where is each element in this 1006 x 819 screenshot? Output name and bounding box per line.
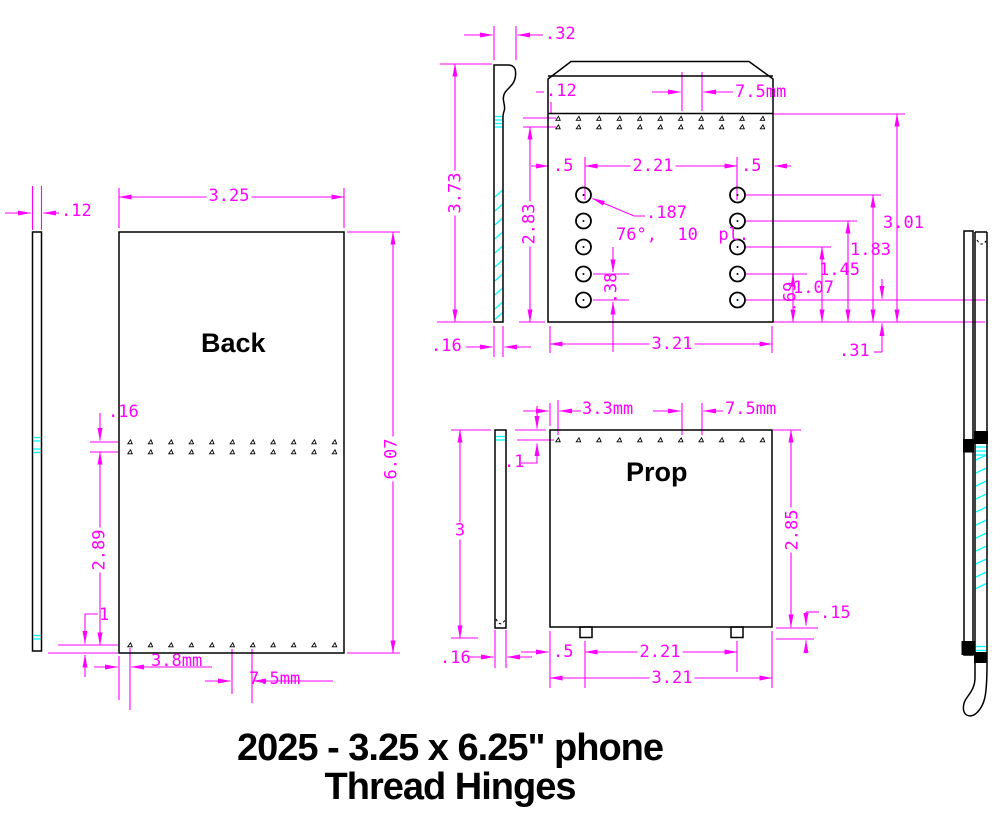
thread-line: [495, 218, 503, 225]
hole-mark: [740, 116, 745, 120]
hole-mark: [332, 450, 336, 454]
screw-hole-center: [737, 246, 739, 248]
hole-mark: [760, 438, 764, 442]
hole-mark: [291, 643, 295, 647]
hole-mark: [760, 116, 764, 120]
thread-line: [495, 204, 503, 211]
dim-prop-edge: .5: [553, 644, 573, 661]
dim-prop-side-thickness: .16: [440, 650, 471, 667]
hole-mark: [230, 450, 234, 454]
dim-prop-height: 2.85: [785, 508, 802, 553]
hole-mark: [251, 440, 255, 444]
hole-mark: [658, 116, 663, 120]
hole-mark: [617, 125, 622, 129]
hole-mark: [189, 643, 193, 647]
thread-line: [976, 533, 987, 538]
hole-mark: [169, 450, 173, 454]
hole-mark: [679, 125, 683, 129]
hole-mark: [210, 450, 214, 454]
dim-back-hole-pitch: 7.5mm: [249, 671, 300, 688]
dim-plate-screw-span: 2.21: [631, 158, 676, 175]
thread-line: [495, 260, 503, 267]
hole-mark: [230, 643, 234, 647]
dim-side-height: 3.73: [448, 171, 465, 216]
dim-plate-edge-right: .5: [741, 158, 761, 175]
hole-mark: [128, 440, 132, 444]
dim-prop-hole-pitch: 7.5mm: [725, 401, 776, 418]
thread-line: [976, 455, 987, 460]
screw-hole-center: [737, 273, 739, 275]
hole-mark: [210, 440, 214, 444]
title-line-2: Thread Hinges: [0, 768, 900, 807]
dim-side-thickness: .16: [431, 338, 462, 355]
hole-mark: [597, 116, 601, 120]
thread-line: [495, 190, 503, 197]
hole-mark: [251, 450, 255, 454]
dim-prop-side-height: 3: [453, 523, 467, 540]
screw-hole-center: [583, 273, 585, 275]
hole-mark: [576, 438, 580, 442]
hole-mark: [679, 116, 683, 120]
back-view-label: Back: [201, 330, 266, 357]
dim-screw-diameter: .187: [646, 205, 687, 222]
hole-mark: [271, 643, 275, 647]
hole-mark: [312, 450, 316, 454]
hole-mark: [332, 440, 336, 444]
thread-line: [976, 507, 987, 512]
screw-hole-center: [737, 299, 739, 301]
drawing-title: 2025 - 3.25 x 6.25" phone Thread Hinges: [0, 729, 900, 807]
hole-mark: [169, 440, 173, 444]
hole-mark: [556, 438, 560, 442]
hole-mark: [556, 125, 560, 129]
hole-mark: [148, 450, 152, 454]
dim-back-height: 6.07: [384, 437, 401, 482]
thread-line: [976, 559, 987, 564]
dim-screw-note: 76°, 10 pl.: [616, 227, 749, 244]
thread-line: [495, 302, 503, 309]
thread-line: [495, 274, 503, 281]
dim-plate-row-height: 2.83: [522, 202, 539, 247]
hole-mark: [169, 643, 173, 647]
hole-mark: [597, 125, 601, 129]
dim-side-hook-depth: .32: [545, 26, 576, 43]
hole-mark: [556, 116, 560, 120]
back-hinge-profile: [494, 65, 516, 322]
hole-mark: [658, 438, 663, 442]
hole-mark: [332, 643, 336, 647]
dim-prop-width: 3.21: [650, 670, 695, 687]
thread-line: [976, 546, 987, 551]
thread-line: [495, 288, 503, 295]
hole-mark: [699, 125, 704, 129]
hole-mark: [128, 450, 132, 454]
hole-mark: [210, 643, 214, 647]
hole-mark: [251, 643, 255, 647]
dim-plate-h301: 3.01: [883, 215, 924, 232]
hole-mark: [148, 440, 152, 444]
screw-hole-center: [583, 246, 585, 248]
hole-mark: [740, 125, 745, 129]
dim-back-row-gap: .16: [108, 404, 139, 421]
screw-hole-center: [737, 220, 739, 222]
dim-plate-bottom-offset: .31: [839, 343, 870, 360]
hole-mark: [617, 438, 622, 442]
thread-line: [976, 520, 987, 525]
dim-prop-feet-span: 2.21: [638, 644, 683, 661]
hole-mark: [189, 450, 193, 454]
hole-mark: [128, 643, 132, 647]
hole-mark: [148, 643, 152, 647]
cad-drawing: .12 3.25 6.07 .16 2.89 1 3.8mm 7.5mm .32…: [0, 0, 1006, 819]
screw-hole-center: [737, 194, 739, 196]
screw-hole-center: [583, 220, 585, 222]
hole-mark: [312, 440, 316, 444]
hole-mark: [189, 440, 193, 444]
hole-mark: [638, 438, 642, 442]
hole-mark: [312, 643, 316, 647]
hole-mark: [617, 116, 622, 120]
assembled-side-view: [962, 231, 989, 716]
thread-line: [976, 468, 987, 473]
dim-plate-hole-inset: .12: [546, 83, 577, 100]
drawing-canvas: [0, 0, 1006, 819]
thread-line: [495, 232, 503, 239]
hole-mark: [638, 125, 642, 129]
dim-plate-edge-left: .5: [553, 158, 573, 175]
hole-mark: [230, 440, 234, 444]
hole-mark: [576, 125, 580, 129]
hole-mark: [271, 450, 275, 454]
thread-line: [976, 494, 987, 499]
dim-back-bottom-offset: 1: [99, 607, 109, 624]
title-line-1: 2025 - 3.25 x 6.25" phone: [0, 729, 900, 768]
dim-plate-h107: 1.07: [793, 280, 834, 297]
dim-back-row-span: 2.89: [92, 528, 109, 573]
dim-plate-width: 3.21: [650, 336, 695, 353]
hole-mark: [576, 116, 580, 120]
dim-back-width: 3.25: [207, 188, 252, 205]
hole-mark: [760, 125, 764, 129]
thread-line: [976, 572, 987, 577]
hole-mark: [291, 450, 295, 454]
hole-mark: [679, 438, 683, 442]
hole-mark: [719, 116, 723, 120]
hole-mark: [597, 438, 601, 442]
hole-mark: [658, 125, 663, 129]
hole-mark: [699, 438, 704, 442]
thread-line: [976, 584, 987, 589]
hole-mark: [638, 116, 642, 120]
dim-plate-h183: 1.83: [850, 242, 891, 259]
thread-line: [495, 313, 503, 320]
prop-view-label: Prop: [626, 459, 688, 486]
hole-mark: [740, 438, 745, 442]
dim-prop-top-offset: .1: [504, 454, 524, 471]
dim-screw-pitch: .38: [604, 273, 621, 304]
dim-plate-hole-pitch: 7.5mm: [735, 84, 786, 101]
thread-line: [976, 481, 987, 486]
dim-prop-hole-inset: 3.3mm: [582, 401, 633, 418]
hole-mark: [291, 440, 295, 444]
hole-mark: [271, 440, 275, 444]
thread-line: [495, 246, 503, 253]
dim-back-hole-inset: 3.8mm: [151, 653, 202, 670]
dim-back-strip-thickness: .12: [61, 203, 92, 220]
screw-hole-center: [583, 194, 585, 196]
hole-mark: [699, 116, 704, 120]
dim-prop-foot: .15: [820, 605, 851, 622]
hook-foot: [963, 663, 987, 716]
dim-plate-h145: 1.45: [819, 262, 860, 279]
hole-mark: [719, 438, 723, 442]
screw-hole-center: [583, 299, 585, 301]
hole-mark: [719, 125, 723, 129]
